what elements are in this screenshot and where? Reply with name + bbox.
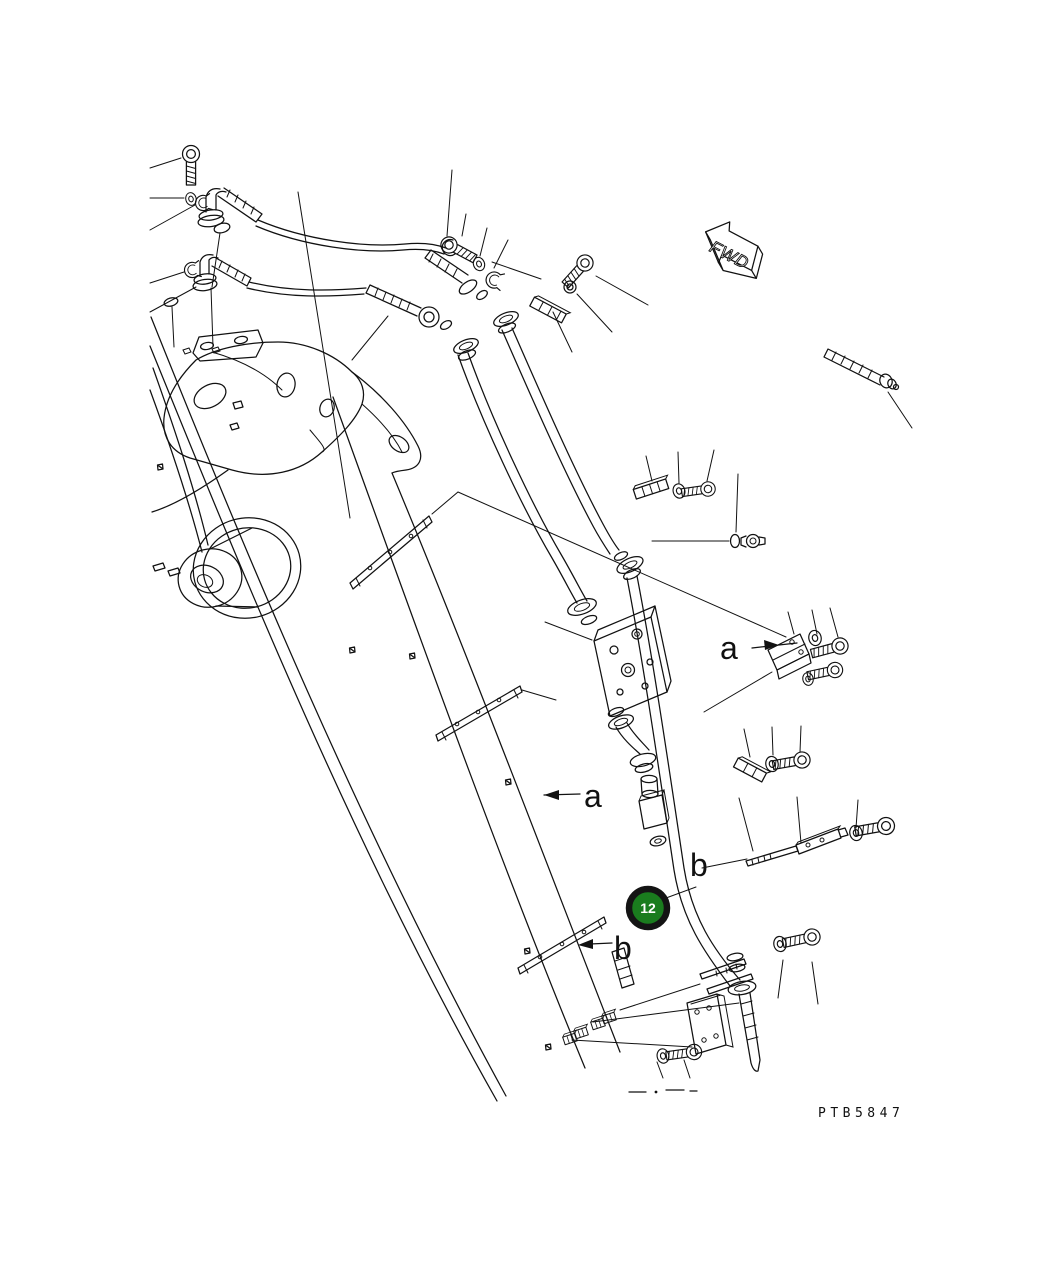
sleeve-top-right <box>824 349 899 390</box>
hydraulic-tube-left <box>452 336 599 627</box>
clamp-rails <box>350 516 634 988</box>
callout-a-left-label: a <box>584 778 602 814</box>
fasteners-top-middle <box>425 234 596 324</box>
drawing-number: PTB5847 <box>818 1106 904 1121</box>
callout-b-lower-arrowhead <box>578 939 593 949</box>
fwd-label: FWD <box>707 237 753 273</box>
exploded-parts-drawing: FWD a a b b 12 PTB5847 <box>0 0 1047 1270</box>
leader-lines <box>150 158 912 1078</box>
clamp-washer-bolt-row-upper <box>632 475 716 500</box>
callout-a-right: a <box>720 630 797 666</box>
rod-clamp-assembly <box>746 816 896 866</box>
callout-b-upper: b <box>690 847 708 883</box>
hidden-edge-dashes <box>629 1090 697 1093</box>
clamp-washer-bolt-row-middle <box>734 751 812 784</box>
part-marker-number: 12 <box>640 900 656 916</box>
pivot-boss <box>153 506 312 631</box>
plug-and-fitting <box>731 535 766 548</box>
callout-b-lower-label: b <box>614 930 632 966</box>
upper-hose-assembly <box>163 188 455 347</box>
callout-a-left: a <box>544 778 602 814</box>
valve-manifold-block <box>594 606 671 716</box>
washer-bolt-lower-right <box>773 927 822 952</box>
callout-b-upper-label: b <box>690 847 708 883</box>
bracket-a-right <box>768 629 850 686</box>
diagram-canvas: FWD a a b b 12 PTB5847 <box>0 0 1047 1270</box>
callout-a-left-arrowhead <box>544 790 559 800</box>
part-marker-12[interactable]: 12 <box>629 887 696 927</box>
callout-a-right-label: a <box>720 630 738 666</box>
boom-structure <box>150 317 620 1101</box>
fwd-arrow: FWD <box>699 218 767 279</box>
fasteners-top-left <box>183 146 213 280</box>
